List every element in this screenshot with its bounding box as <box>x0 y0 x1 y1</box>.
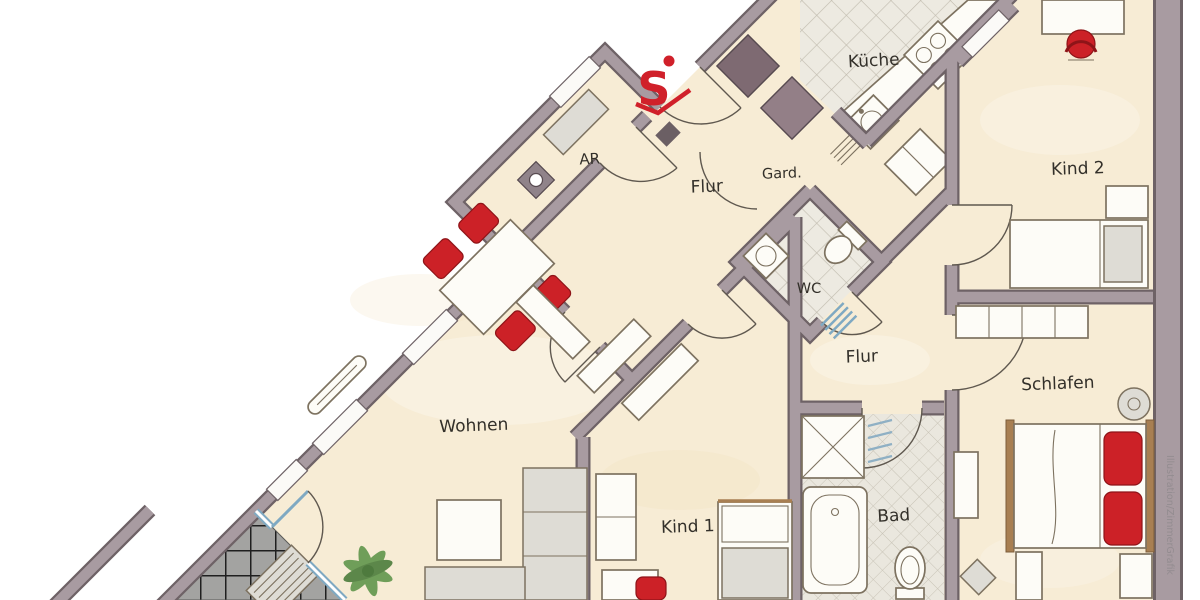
bedroom-cabinet <box>1016 552 1042 600</box>
label-kitchen: Küche <box>847 50 900 73</box>
label-bathroom: Bad <box>877 505 911 527</box>
bathtub-icon <box>803 487 867 593</box>
pillow <box>1104 492 1142 545</box>
label-kind1: Kind 1 <box>661 516 715 538</box>
kind2-desk <box>1042 0 1124 34</box>
kind2-pillow <box>1104 226 1142 282</box>
label-bedroom: Schlafen <box>1021 373 1095 396</box>
floorplan-page: AR Flur Gard. Küche Kind 2 WC Flur Wohne… <box>0 0 1200 600</box>
kind1-chair <box>636 577 666 600</box>
sofa-chaise <box>425 567 525 600</box>
label-storage: AR <box>579 149 601 168</box>
bedroom-nightstand <box>1120 554 1152 598</box>
label-wc: WC <box>797 281 821 297</box>
watermark-credit: Illustration/ZimmerGrafik <box>1164 455 1175 575</box>
bedroom-dresser <box>954 452 978 518</box>
toilet-icon <box>895 547 925 599</box>
pillow <box>1104 432 1142 485</box>
kind2-bed <box>1010 220 1148 288</box>
label-livingroom: Wohnen <box>439 415 509 437</box>
kind2-nightstand <box>1106 186 1148 218</box>
kind1-bed <box>718 501 792 600</box>
double-bed <box>1006 420 1154 552</box>
label-kind2: Kind 2 <box>1051 158 1105 180</box>
label-hall-north: Flur <box>690 176 723 197</box>
label-hall-east: Flur <box>845 346 878 367</box>
label-wardrobe: Gard. <box>762 165 802 182</box>
bedroom-stool-round <box>1118 388 1150 420</box>
sofa <box>523 468 587 600</box>
floorplan-canvas: AR Flur Gard. Küche Kind 2 WC Flur Wohne… <box>0 0 1200 600</box>
coffee-table <box>437 500 501 560</box>
